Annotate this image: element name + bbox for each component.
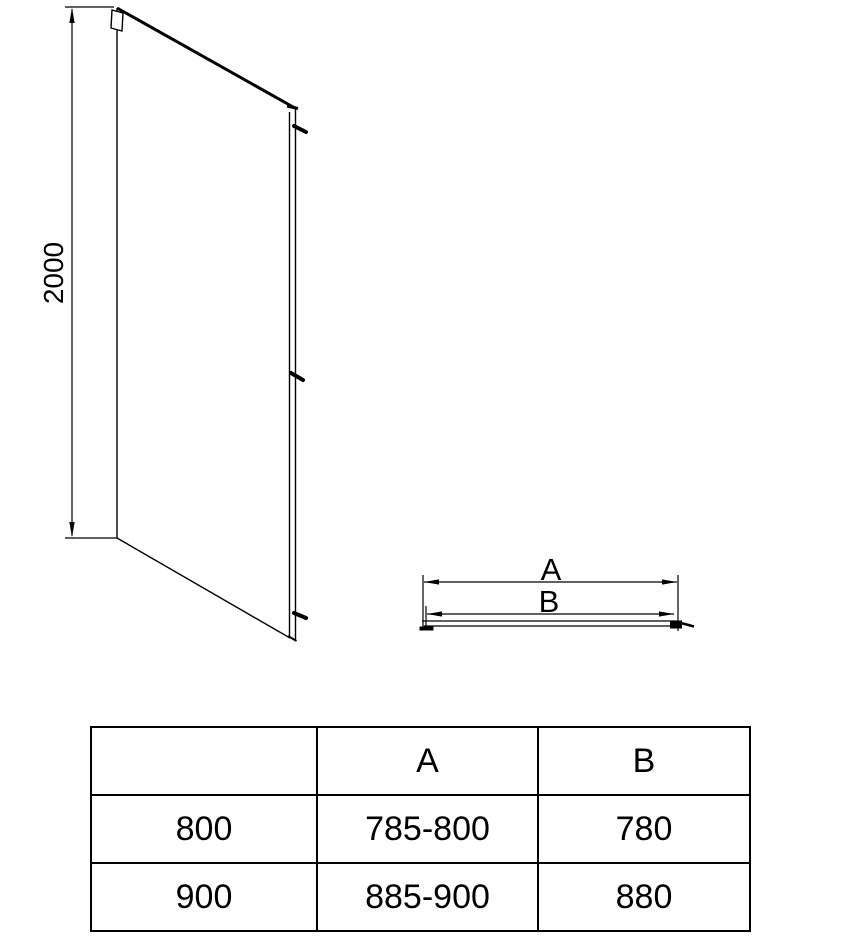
support-pin-middle bbox=[291, 373, 303, 380]
table-cell-b: 880 bbox=[538, 863, 750, 931]
elevation-view: 2000 bbox=[38, 7, 306, 641]
width-dimension-a: A bbox=[424, 552, 677, 587]
table-cell-b: 780 bbox=[538, 795, 750, 863]
glass-bottom-edge bbox=[117, 538, 290, 638]
arrow-left-icon bbox=[424, 579, 439, 584]
arrow-left-icon bbox=[427, 611, 442, 616]
panel-top-view-bar bbox=[422, 621, 677, 626]
dim-b-label: B bbox=[539, 584, 560, 619]
arrow-right-icon bbox=[662, 579, 677, 584]
table-header-a: A bbox=[317, 727, 538, 795]
arrow-down-icon bbox=[69, 522, 74, 537]
plan-view: A B bbox=[420, 552, 695, 631]
dim-a-label: A bbox=[541, 552, 562, 587]
arrow-right-icon bbox=[659, 611, 674, 616]
support-pins bbox=[291, 126, 306, 618]
table-row: 900 885-900 880 bbox=[91, 863, 750, 931]
table-header-row: A B bbox=[91, 727, 750, 795]
height-dim-label: 2000 bbox=[38, 242, 69, 304]
glass-panel bbox=[117, 8, 298, 641]
table-row: 800 785-800 780 bbox=[91, 795, 750, 863]
shower-panel-drawing: 2000 bbox=[0, 0, 846, 710]
table-cell-a: 785-800 bbox=[317, 795, 538, 863]
wall-profile-right bbox=[670, 621, 694, 629]
table-cell-size: 900 bbox=[91, 863, 317, 931]
wall-profile-right-body bbox=[670, 621, 682, 629]
width-dimension-b: B bbox=[427, 584, 674, 619]
table-cell-a: 885-900 bbox=[317, 863, 538, 931]
table-header-b: B bbox=[538, 727, 750, 795]
technical-drawing-page: 2000 bbox=[0, 0, 846, 938]
glass-top-cap bbox=[287, 106, 298, 109]
height-dimension: 2000 bbox=[38, 7, 117, 538]
arrow-up-icon bbox=[69, 8, 74, 23]
table-cell-size: 800 bbox=[91, 795, 317, 863]
table-header-size bbox=[91, 727, 317, 795]
wall-profile-clip bbox=[111, 10, 123, 31]
dimensions-table: A B 800 785-800 780 900 885-900 880 bbox=[90, 726, 751, 932]
wall-profile-left bbox=[420, 627, 434, 631]
wall-profile-right-arm bbox=[681, 623, 694, 627]
glass-top-edge bbox=[117, 8, 294, 108]
